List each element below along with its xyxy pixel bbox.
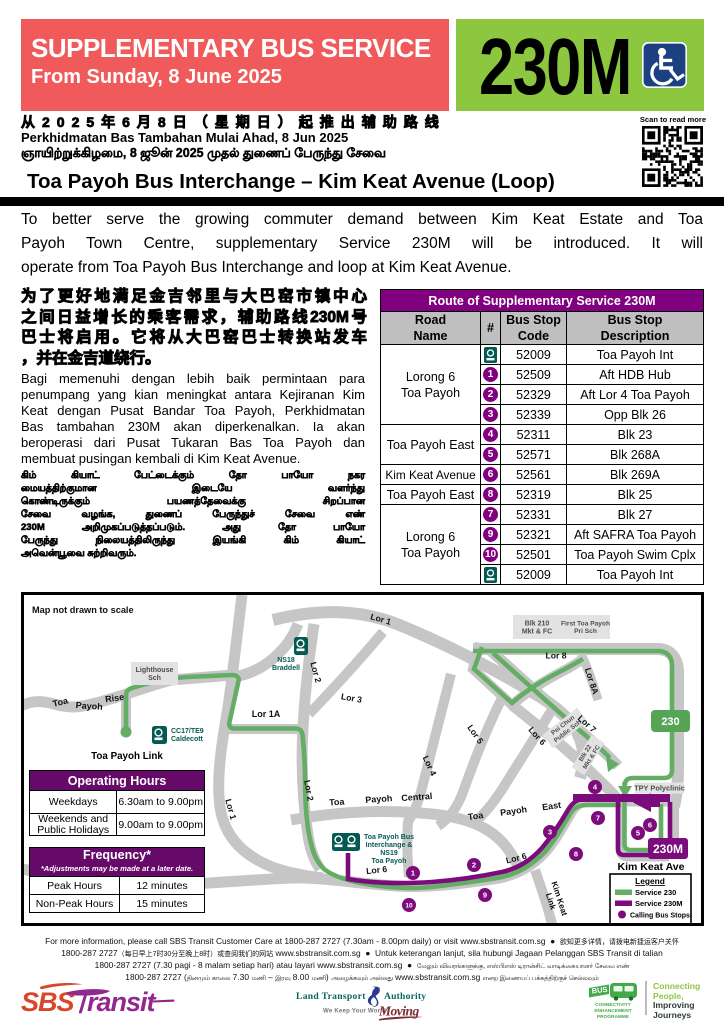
svg-text:Sch: Sch <box>148 675 161 682</box>
svg-text:BUS: BUS <box>591 985 608 996</box>
svg-text:NS18: NS18 <box>277 657 295 664</box>
svg-text:Kim Keat Ave: Kim Keat Ave <box>618 861 685 873</box>
svg-text:Map not drawn to scale: Map not drawn to scale <box>32 605 134 615</box>
svg-text:Lighthouse: Lighthouse <box>136 667 174 674</box>
svg-text:9: 9 <box>483 891 487 900</box>
svg-text:Pri Sch: Pri Sch <box>574 628 597 635</box>
svg-text:Authority: Authority <box>384 991 426 1002</box>
svg-text:ransit: ransit <box>87 987 157 1017</box>
svg-text:Payoh: Payoh <box>75 700 103 712</box>
svg-text:Blk 210: Blk 210 <box>525 620 550 627</box>
svg-text:Lor 1A: Lor 1A <box>252 709 281 719</box>
svg-text:1: 1 <box>411 869 415 878</box>
svg-text:10: 10 <box>405 903 413 910</box>
svg-text:6: 6 <box>648 821 652 830</box>
svg-text:Calling Bus Stops: Calling Bus Stops <box>630 913 690 920</box>
svg-text:7: 7 <box>596 814 600 823</box>
svg-text:Lor 6: Lor 6 <box>366 864 388 876</box>
svg-text:230: 230 <box>661 716 679 728</box>
svg-text:230M: 230M <box>653 842 683 856</box>
svg-text:5: 5 <box>636 829 640 838</box>
svg-text:ENHANCEMENT: ENHANCEMENT <box>594 1008 631 1014</box>
svg-text:Caldecott: Caldecott <box>171 736 204 743</box>
svg-text:Central: Central <box>401 791 433 803</box>
svg-text:PROGRAMME: PROGRAMME <box>597 1014 630 1020</box>
svg-text:First Toa Payoh: First Toa Payoh <box>561 620 610 627</box>
svg-text:Toa Payoh Bus: Toa Payoh Bus <box>364 834 414 841</box>
svg-text:Payoh: Payoh <box>365 793 393 805</box>
svg-text:Moving: Moving <box>378 1004 420 1019</box>
svg-text:Interchange &: Interchange & <box>366 842 413 849</box>
svg-text:Legend: Legend <box>635 876 665 886</box>
svg-text:Lor 3: Lor 3 <box>340 691 363 705</box>
svg-text:SBS: SBS <box>21 987 75 1017</box>
svg-text:CONNECTIVITY: CONNECTIVITY <box>595 1002 632 1008</box>
svg-text:Toa Payoh: Toa Payoh <box>372 858 407 865</box>
svg-text:Lor 8A: Lor 8A <box>583 667 601 696</box>
svg-text:8: 8 <box>574 850 578 859</box>
svg-text:Toa Payoh Link: Toa Payoh Link <box>91 751 163 762</box>
svg-text:Mkt & FC: Mkt & FC <box>522 629 552 636</box>
svg-text:Braddell: Braddell <box>272 665 300 672</box>
svg-text:We Keep Your World: We Keep Your World <box>323 1008 386 1015</box>
svg-text:Lor 8: Lor 8 <box>545 651 566 661</box>
svg-text:Payoh: Payoh <box>500 804 528 818</box>
svg-text:NS19: NS19 <box>380 850 398 857</box>
svg-text:TPY Polyclinic: TPY Polyclinic <box>634 784 685 793</box>
svg-text:East: East <box>541 800 561 813</box>
svg-text:3: 3 <box>548 828 552 837</box>
svg-text:CC17/TE9: CC17/TE9 <box>171 728 204 735</box>
svg-text:Service 230M: Service 230M <box>635 899 683 908</box>
svg-text:Service 230: Service 230 <box>635 888 676 897</box>
svg-text:2: 2 <box>472 861 476 870</box>
svg-text:Toa: Toa <box>329 796 346 807</box>
svg-text:Land Transport: Land Transport <box>296 991 366 1002</box>
